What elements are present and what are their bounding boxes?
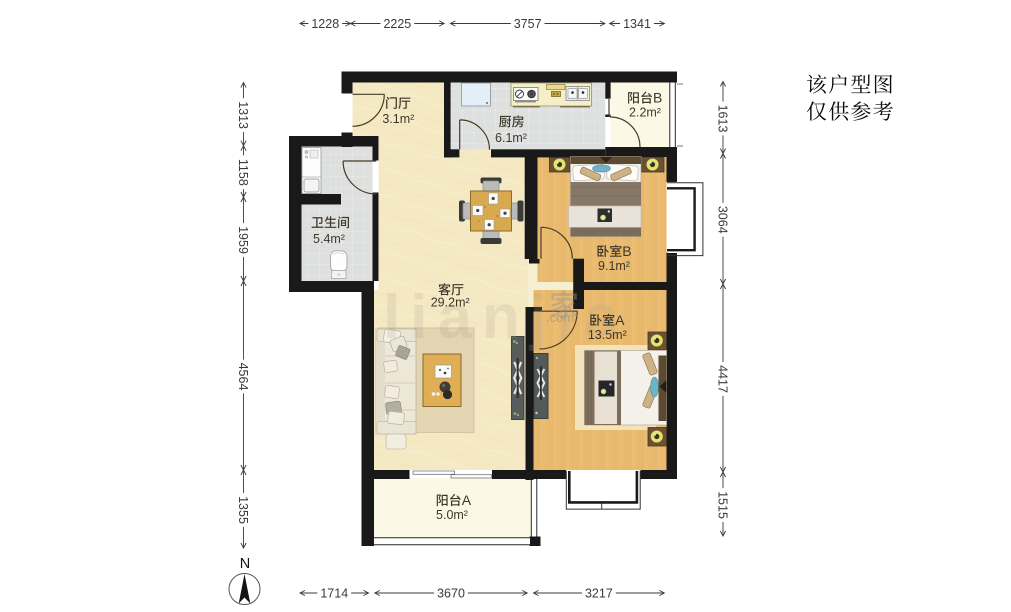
svg-text:9.1m²: 9.1m² [598, 259, 630, 273]
svg-text:B: B [622, 243, 631, 259]
svg-text:3670: 3670 [437, 586, 465, 600]
svg-text:1515: 1515 [716, 491, 730, 519]
svg-text:29.2m²: 29.2m² [431, 295, 470, 309]
svg-text:1714: 1714 [320, 586, 348, 600]
svg-text:3.1m²: 3.1m² [382, 112, 414, 126]
svg-text:2.2m²: 2.2m² [629, 106, 661, 120]
svg-text:4417: 4417 [716, 365, 730, 393]
svg-text:1313: 1313 [236, 101, 250, 129]
svg-text:5.0m²: 5.0m² [436, 508, 468, 522]
svg-text:1228: 1228 [311, 17, 339, 31]
svg-text:13.5m²: 13.5m² [588, 328, 627, 342]
svg-text:3064: 3064 [716, 206, 730, 234]
svg-text:1613: 1613 [716, 105, 730, 133]
svg-text:5.4m²: 5.4m² [313, 232, 345, 246]
svg-text:1959: 1959 [236, 226, 250, 254]
svg-text:3217: 3217 [585, 586, 613, 600]
svg-text:2225: 2225 [383, 17, 411, 31]
svg-text:B: B [653, 90, 662, 106]
svg-text:4564: 4564 [236, 363, 250, 391]
svg-text:3757: 3757 [514, 17, 542, 31]
svg-text:N: N [240, 556, 250, 572]
svg-text:6.1m²: 6.1m² [495, 131, 527, 145]
svg-text:1158: 1158 [236, 159, 250, 186]
svg-text:A: A [615, 312, 625, 328]
svg-text:.com: .com [546, 310, 574, 325]
svg-text:A: A [462, 492, 472, 508]
svg-text:1355: 1355 [236, 496, 250, 524]
svg-text:1341: 1341 [623, 17, 651, 31]
